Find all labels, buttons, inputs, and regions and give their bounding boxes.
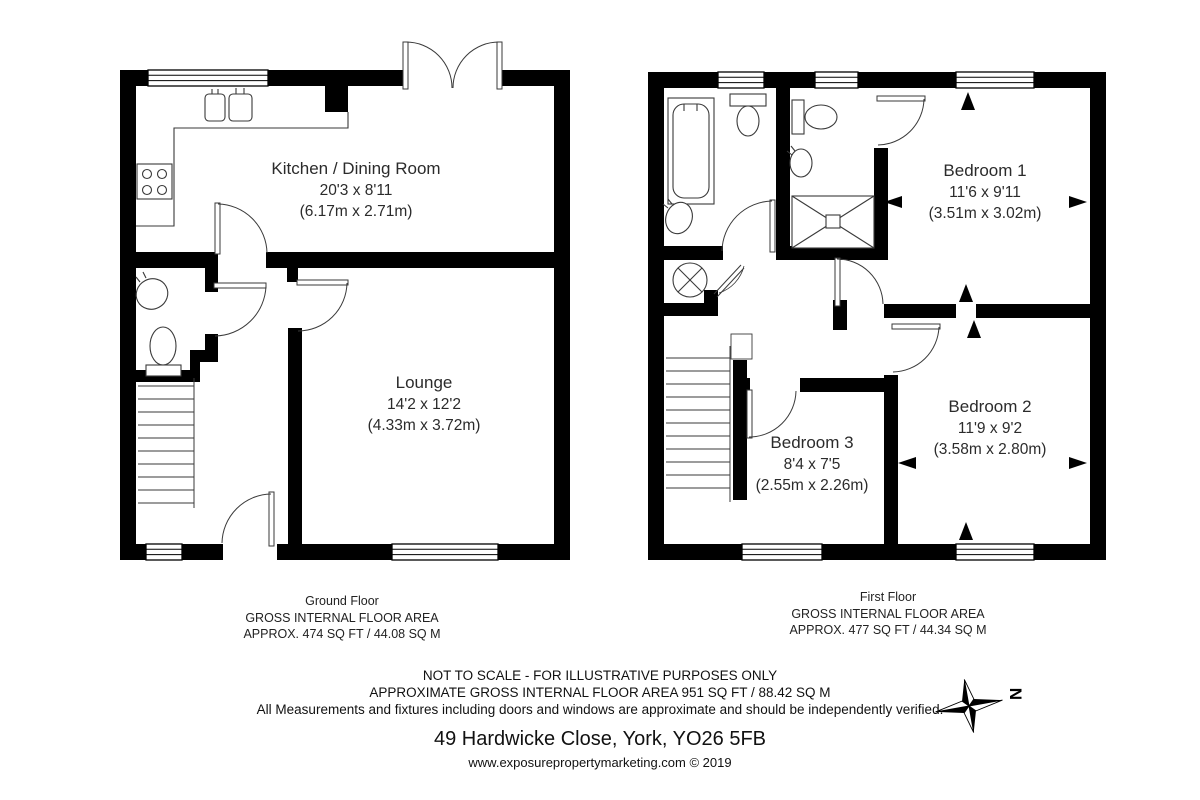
first-floor-caption: First Floor GROSS INTERNAL FLOOR AREA AP… (789, 589, 986, 639)
floor-area-value: APPROX. 474 SQ FT / 44.08 SQ M (243, 626, 440, 643)
disclaimer-scale: NOT TO SCALE - FOR ILLUSTRATIVE PURPOSES… (0, 667, 1200, 684)
wall (664, 88, 1090, 544)
bathtub (668, 98, 714, 204)
property-address: 49 Hardwicke Close, York, YO26 5FB (0, 727, 1200, 751)
floorplan-page: N Kitchen / Dining Room 20'3 x 8'11 (6.1… (0, 0, 1200, 800)
room-dimensions-imperial: 14'2 x 12'2 (368, 394, 481, 415)
room-dimensions-metric: (3.58m x 2.80m) (934, 439, 1047, 460)
wash-basin (131, 272, 173, 315)
french-doors (403, 42, 502, 89)
room-dimensions-imperial: 11'9 x 9'2 (934, 418, 1047, 439)
room-dimensions-imperial: 20'3 x 8'11 (271, 180, 440, 201)
room-dimensions-metric: (3.51m x 3.02m) (929, 203, 1042, 224)
room-name: Bedroom 3 (756, 432, 869, 454)
room-label-lounge: Lounge 14'2 x 12'2 (4.33m x 3.72m) (368, 372, 481, 436)
wall (136, 86, 554, 544)
window (146, 70, 498, 560)
toilet (792, 100, 837, 134)
room-dimensions-metric: (4.33m x 3.72m) (368, 415, 481, 436)
wash-basin (787, 146, 812, 177)
room-dimensions-imperial: 11'6 x 9'11 (929, 182, 1042, 203)
disclaimer-measurements: All Measurements and fixtures including … (0, 701, 1200, 718)
room-label-bedroom-3: Bedroom 3 8'4 x 7'5 (2.55m x 2.26m) (756, 432, 869, 496)
room-dimensions-imperial: 8'4 x 7'5 (756, 454, 869, 475)
room-name: Kitchen / Dining Room (271, 158, 440, 180)
disclaimer-total-area: APPROXIMATE GROSS INTERNAL FLOOR AREA 95… (0, 684, 1200, 701)
marketing-website: www.exposurepropertymarketing.com © 2019 (0, 755, 1200, 771)
room-label-bedroom-2: Bedroom 2 11'9 x 9'2 (3.58m x 2.80m) (934, 396, 1047, 460)
room-dimensions-metric: (2.55m x 2.26m) (756, 475, 869, 496)
floor-title: Ground Floor (243, 593, 440, 610)
floor-area-label: GROSS INTERNAL FLOOR AREA (243, 610, 440, 627)
wall (120, 70, 570, 560)
ground-floor-plan (120, 42, 570, 560)
floor-area-label: GROSS INTERNAL FLOOR AREA (789, 606, 986, 623)
door (214, 203, 348, 336)
footer: NOT TO SCALE - FOR ILLUSTRATIVE PURPOSES… (0, 667, 1200, 771)
toilet (730, 94, 766, 136)
room-name: Bedroom 1 (929, 160, 1042, 182)
first-floor-plan (648, 72, 1106, 560)
staircase (138, 378, 194, 508)
kitchen-sink (205, 88, 252, 121)
room-name: Bedroom 2 (934, 396, 1047, 418)
shower (792, 196, 874, 248)
cylinder-symbol (673, 263, 707, 297)
floor-title: First Floor (789, 589, 986, 606)
front-door (222, 492, 277, 560)
hob (137, 164, 172, 199)
room-label-bedroom-1: Bedroom 1 11'6 x 9'11 (3.51m x 3.02m) (929, 160, 1042, 224)
toilet (146, 327, 181, 376)
ground-floor-caption: Ground Floor GROSS INTERNAL FLOOR AREA A… (243, 593, 440, 643)
room-dimensions-metric: (6.17m x 2.71m) (271, 201, 440, 222)
room-name: Lounge (368, 372, 481, 394)
room-label-kitchen-dining: Kitchen / Dining Room 20'3 x 8'11 (6.17m… (271, 158, 440, 222)
floor-area-value: APPROX. 477 SQ FT / 44.34 SQ M (789, 622, 986, 639)
